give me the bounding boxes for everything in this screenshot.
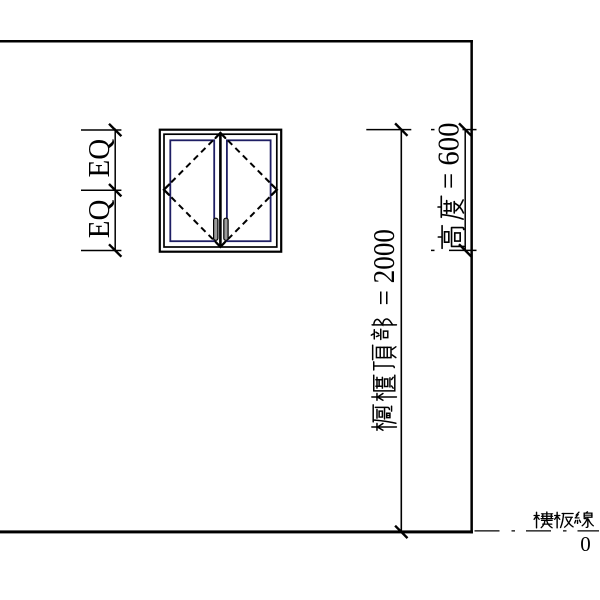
- svg-text:= 2000: = 2000: [366, 229, 401, 306]
- svg-text:EQ: EQ: [81, 139, 116, 178]
- svg-text:0: 0: [580, 532, 591, 556]
- svg-text:EQ: EQ: [81, 200, 116, 239]
- svg-text:= 600: = 600: [430, 123, 465, 190]
